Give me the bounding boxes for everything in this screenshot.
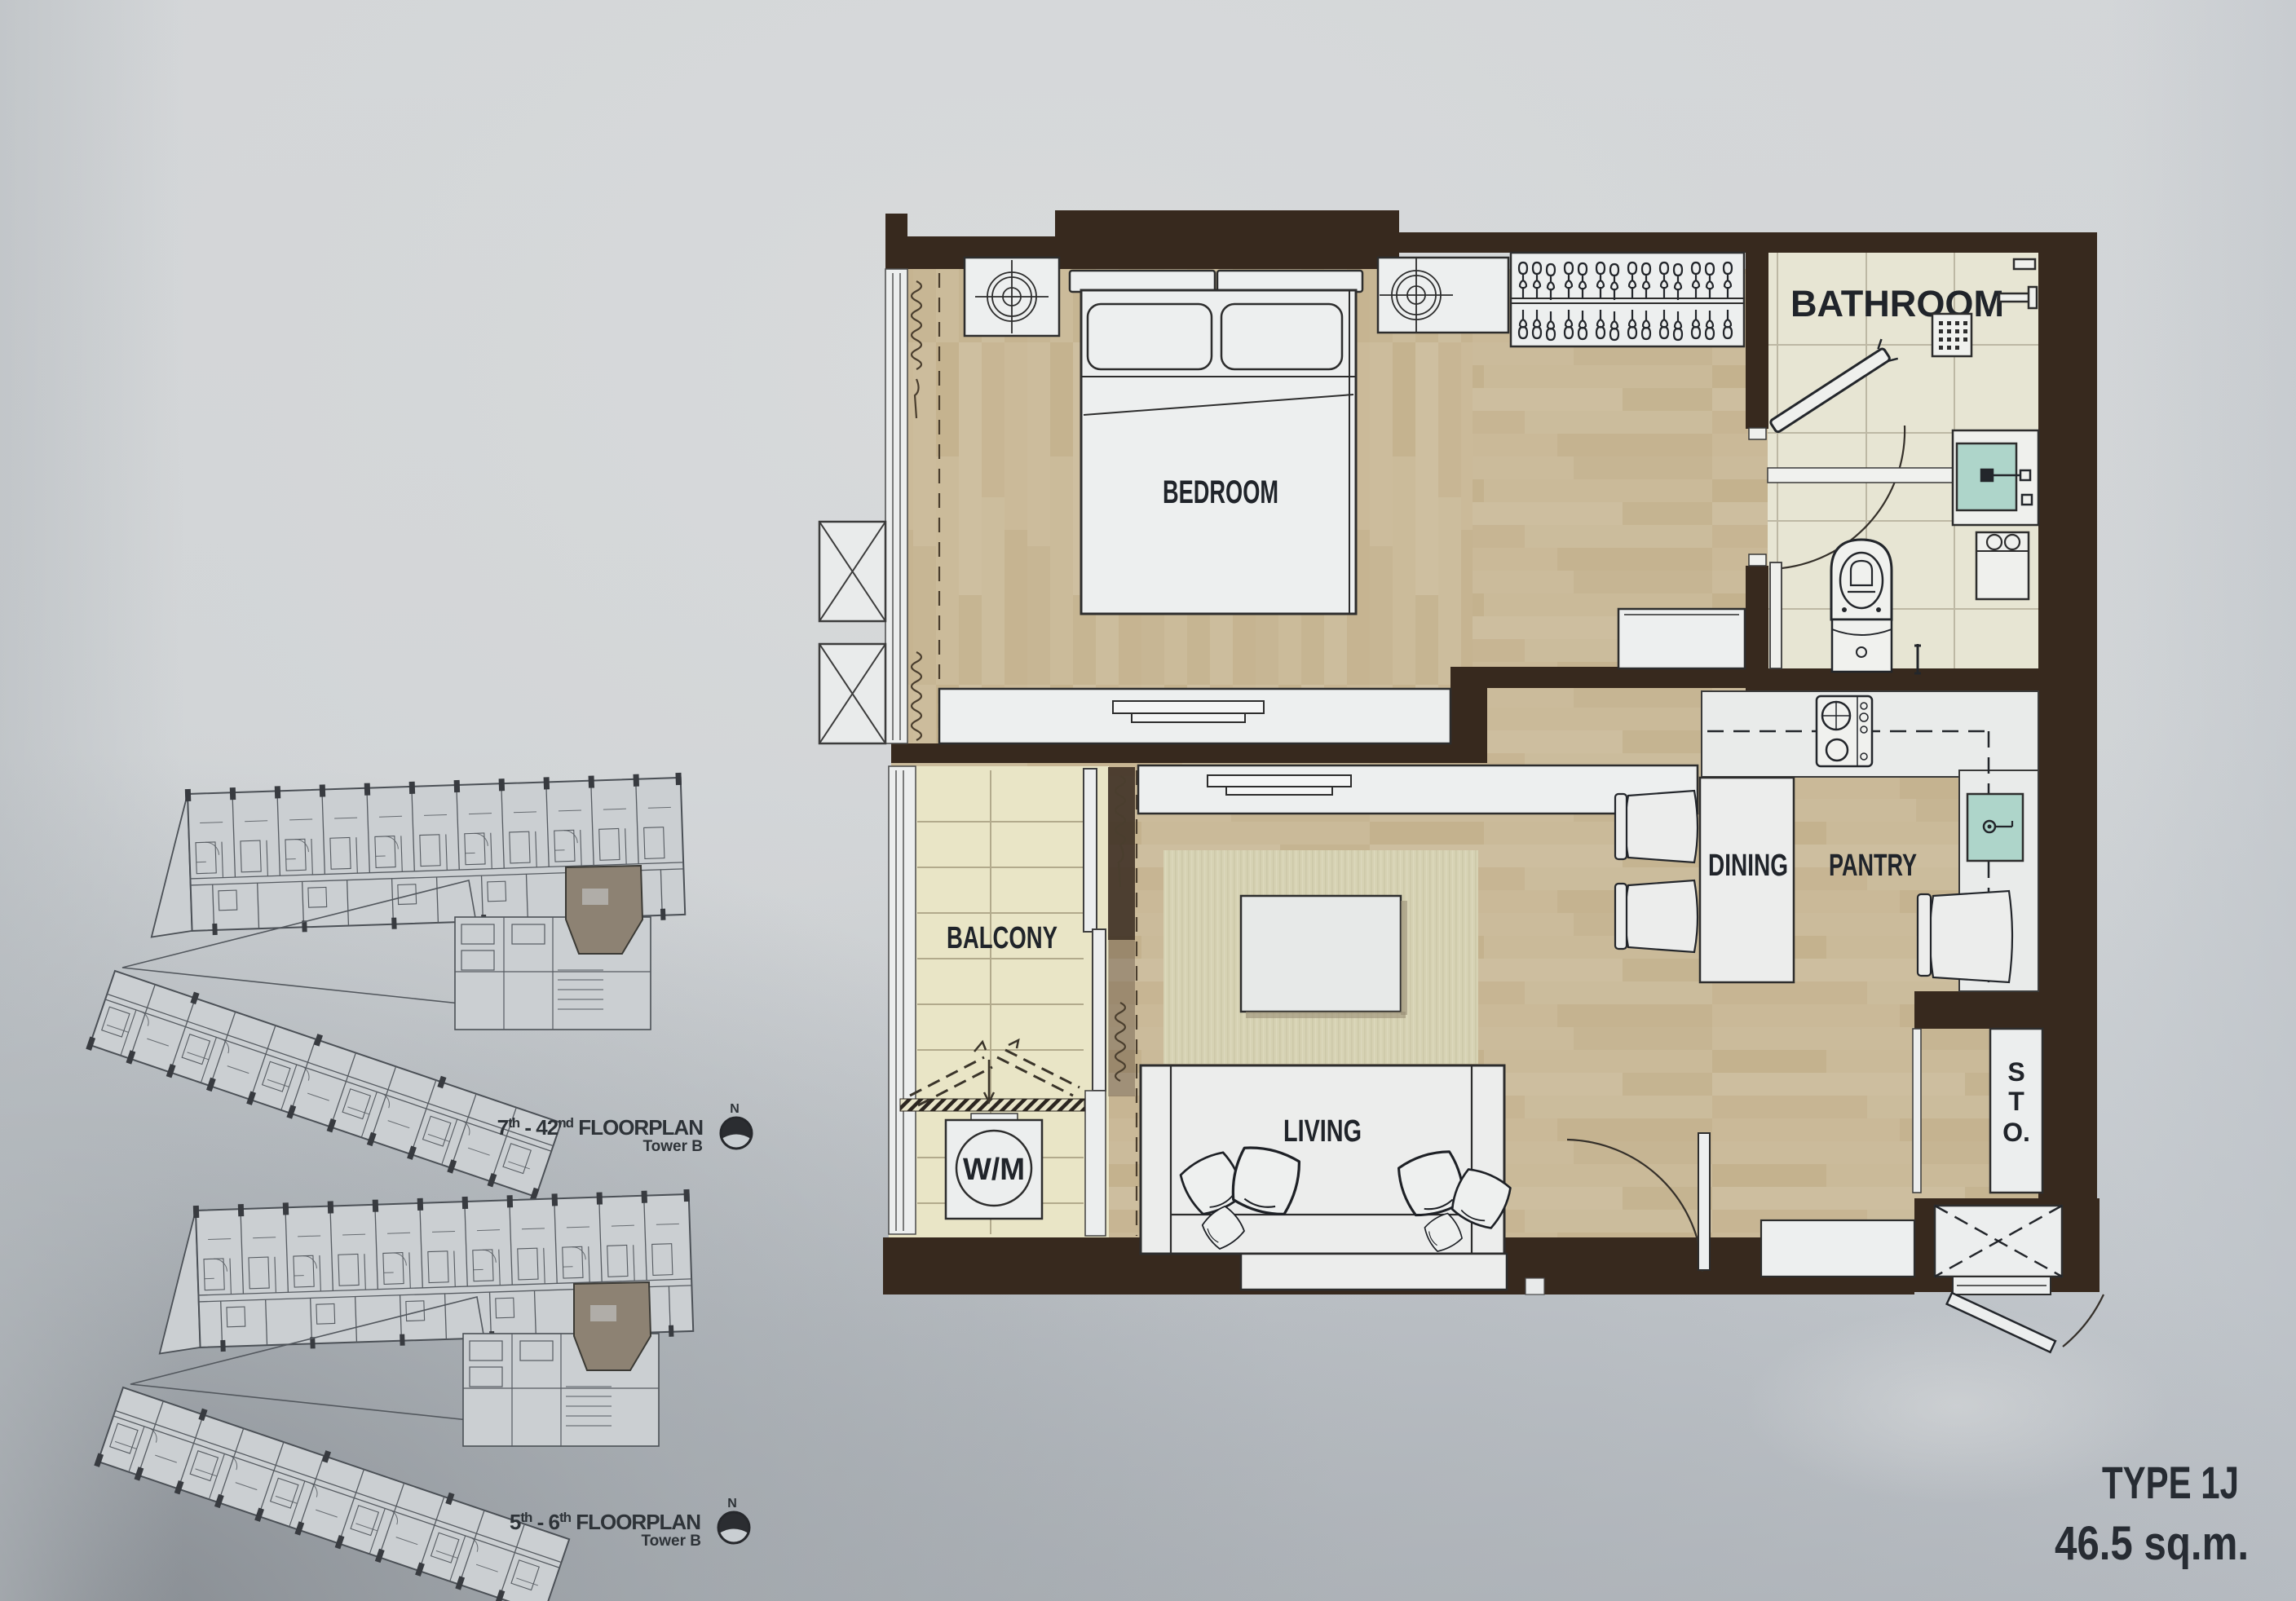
svg-text:7th - 42nd FLOORPLAN: 7th - 42nd FLOORPLAN bbox=[497, 1115, 704, 1140]
svg-text:DINING: DINING bbox=[1708, 849, 1788, 883]
svg-text:Tower B: Tower B bbox=[641, 1533, 701, 1550]
svg-text:N: N bbox=[730, 1102, 740, 1116]
svg-text:TYPE 1J: TYPE 1J bbox=[2102, 1457, 2239, 1508]
svg-text:S: S bbox=[2007, 1057, 2024, 1087]
svg-text:46.5 sq.m.: 46.5 sq.m. bbox=[2055, 1517, 2249, 1570]
svg-text:W/M: W/M bbox=[963, 1153, 1025, 1187]
svg-text:BEDROOM: BEDROOM bbox=[1163, 474, 1278, 510]
svg-text:LIVING: LIVING bbox=[1283, 1114, 1362, 1149]
svg-text:PANTRY: PANTRY bbox=[1829, 849, 1917, 883]
svg-text:T: T bbox=[2008, 1087, 2024, 1116]
svg-text:BALCONY: BALCONY bbox=[947, 921, 1057, 955]
svg-text:5th - 6th FLOORPLAN: 5th - 6th FLOORPLAN bbox=[510, 1510, 700, 1534]
svg-text:Tower B: Tower B bbox=[642, 1138, 703, 1155]
svg-text:O.: O. bbox=[2002, 1118, 2030, 1147]
